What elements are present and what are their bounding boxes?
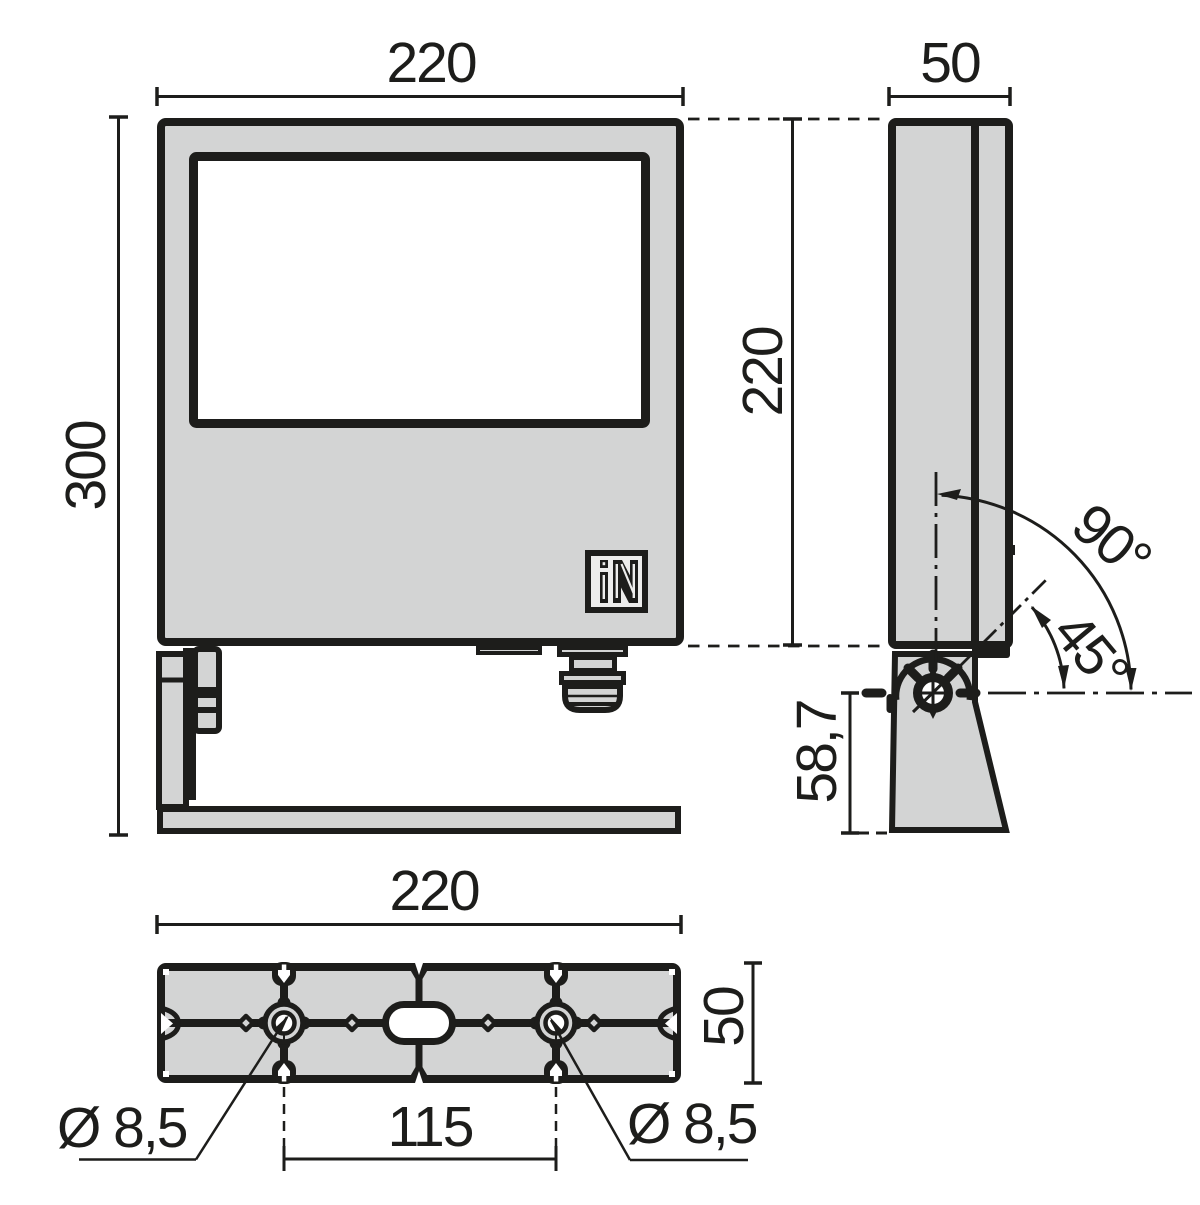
- svg-text:220: 220: [386, 31, 475, 95]
- svg-text:58,7: 58,7: [785, 701, 849, 804]
- svg-text:Ø 8,5: Ø 8,5: [627, 1092, 757, 1156]
- svg-text:220: 220: [731, 327, 795, 416]
- svg-text:45°: 45°: [1040, 600, 1141, 703]
- svg-text:90°: 90°: [1060, 491, 1163, 592]
- svg-text:Ø 8,5: Ø 8,5: [57, 1096, 187, 1160]
- svg-text:300: 300: [54, 421, 118, 510]
- svg-text:220: 220: [389, 859, 478, 923]
- svg-text:115: 115: [388, 1095, 473, 1159]
- svg-text:50: 50: [920, 31, 980, 95]
- svg-text:50: 50: [692, 987, 756, 1047]
